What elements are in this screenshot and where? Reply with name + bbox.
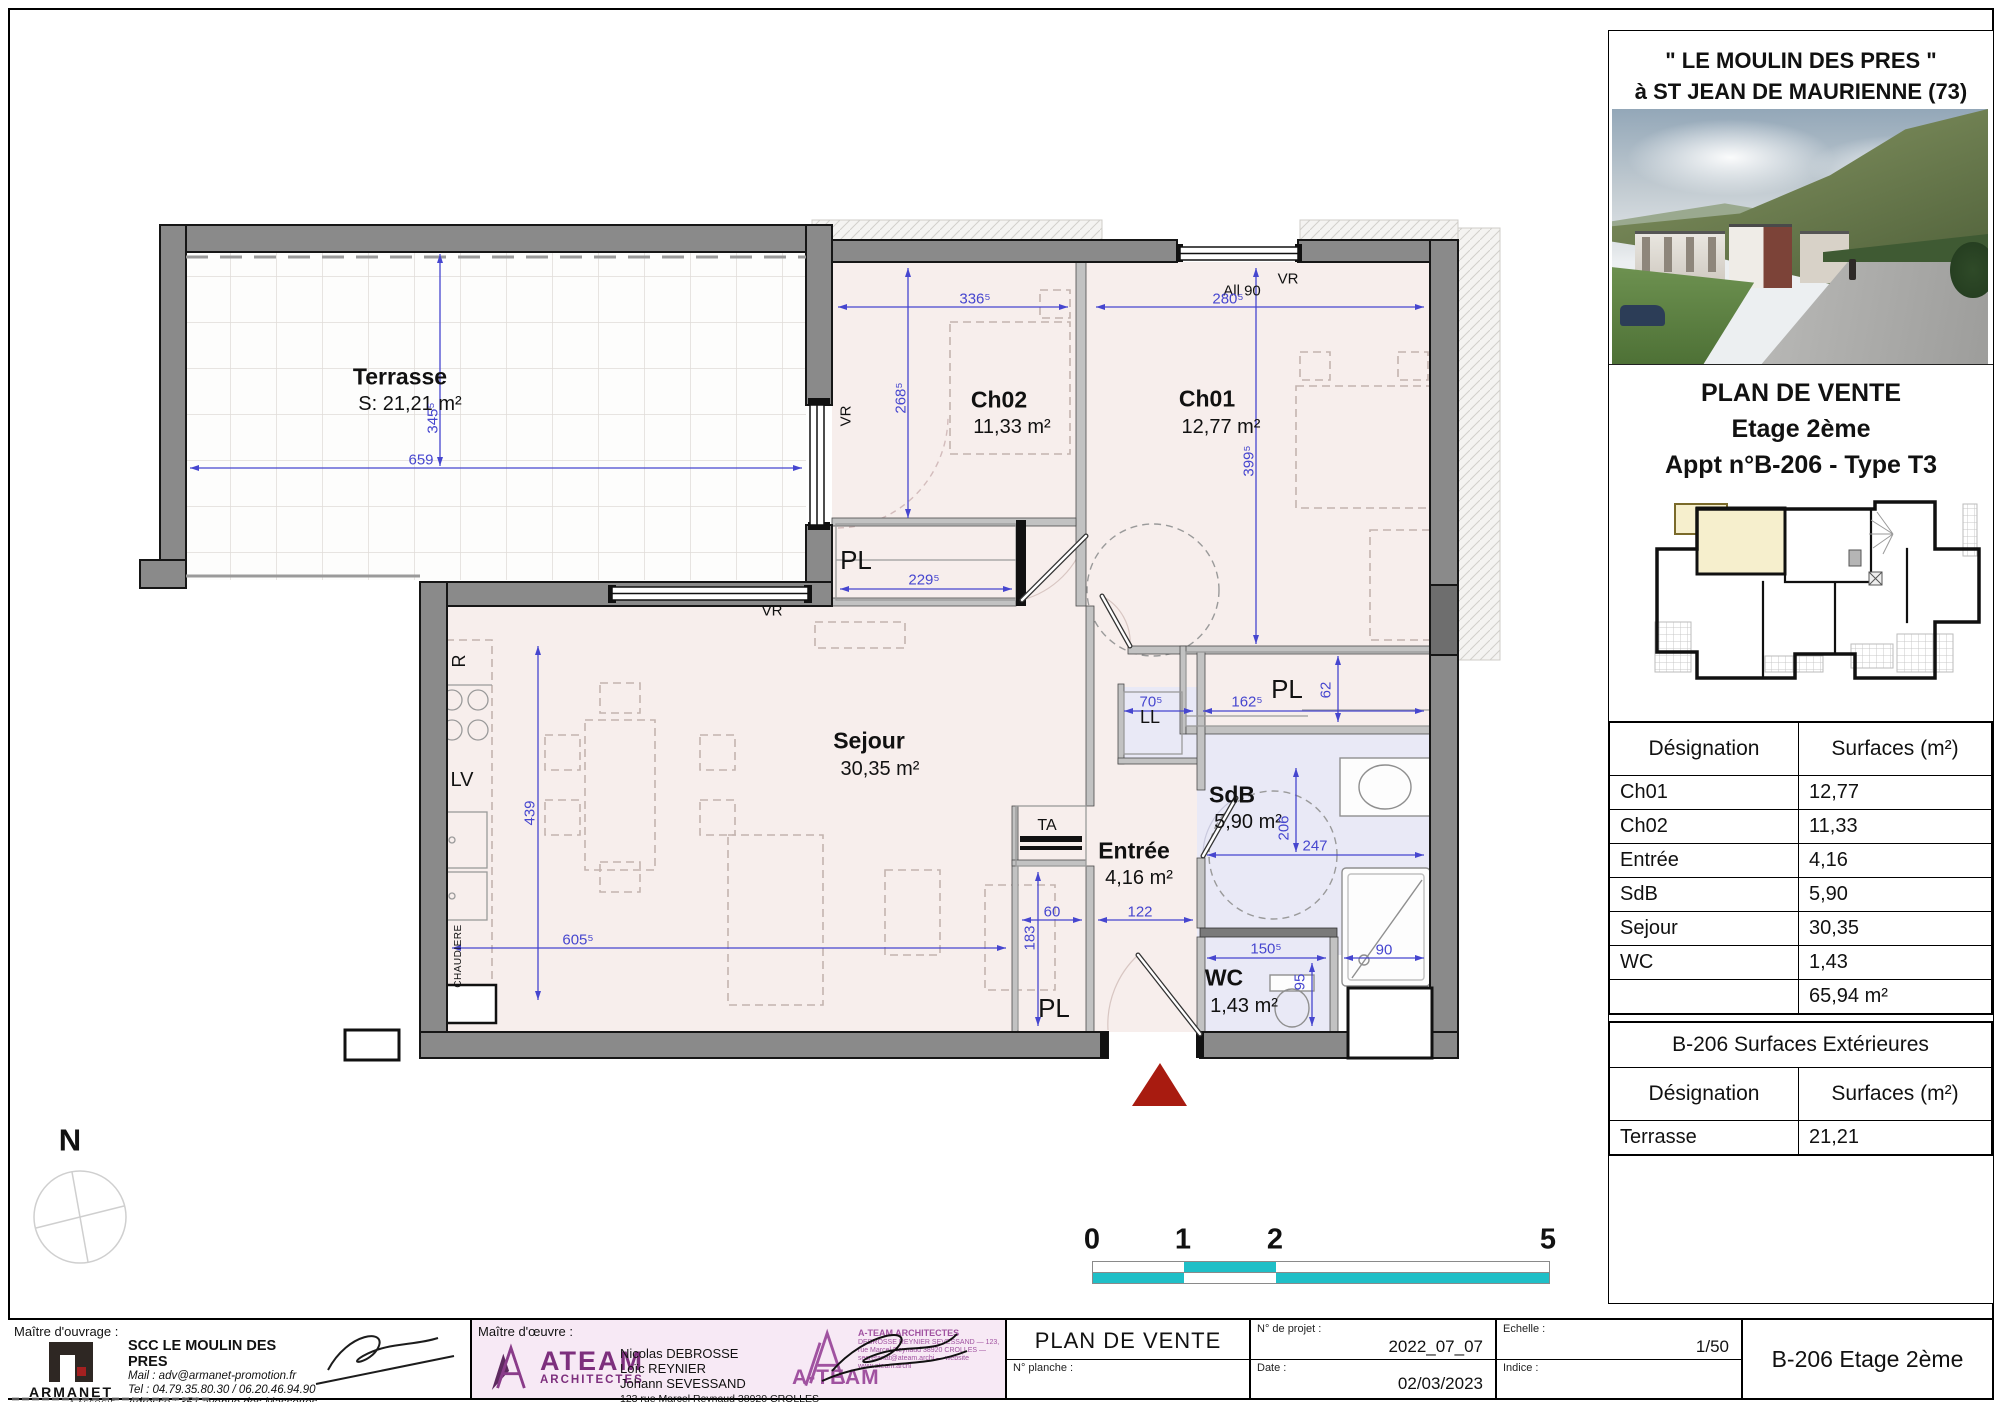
north-compass <box>34 1171 126 1263</box>
room-area-terrasse: S: 21,21 m² <box>358 394 461 414</box>
plan-de-vente-sheet: Terrasse S: 21,21 m² Ch02 11,33 m² Ch01 … <box>0 0 2000 1402</box>
armanet-logo-icon <box>49 1342 93 1382</box>
planche-label: N° planche : <box>1013 1362 1073 1374</box>
table-row: WC1,43 <box>1609 946 1992 980</box>
project-name: " LE MOULIN DES PRES " <box>1609 45 1993 76</box>
client-tel: Tel : 04.79.35.80.30 / 06.20.46.94.90 <box>128 1384 318 1398</box>
scale-tick-0: 0 <box>1084 1226 1100 1255</box>
photo-car <box>1620 305 1665 325</box>
architect-stamp: A-TEAM ARCHITECTES DEBROSSE REYNIER SEVE… <box>792 1326 1004 1392</box>
scale-bar-bottom <box>1092 1272 1550 1284</box>
client-company: SCC LE MOULIN DES PRES <box>128 1338 318 1370</box>
dim-399: 399⁵ <box>1242 445 1257 476</box>
architect-address: 123 rue Marcel Reynaud 38920 CROLLES <box>620 1392 819 1402</box>
dim-183: 183 <box>1023 925 1038 950</box>
room-area-ch01: 12,77 m² <box>1182 417 1261 437</box>
table-row: Ch0211,33 <box>1609 810 1992 844</box>
dim-280: 280⁵ <box>1212 292 1243 307</box>
label-dishwasher: LV <box>451 770 474 790</box>
photo-cloud <box>1627 119 1834 196</box>
room-label-sejour: Sejour <box>833 730 905 753</box>
dim-659: 659 <box>408 453 433 468</box>
client-signature <box>308 1326 458 1392</box>
label-vr-ch01: VR <box>1278 272 1299 287</box>
cell-room: Ch02 <box>1609 810 1799 844</box>
label-vr-ch02: VR <box>839 406 854 427</box>
architect-signature <box>792 1326 1004 1392</box>
sheet-title-block: PLAN DE VENTE Etage 2ème Appt n°B-206 - … <box>1609 364 1993 483</box>
photo-building <box>1729 224 1793 288</box>
table-row: Sejour30,35 <box>1609 912 1992 946</box>
divider <box>1007 1359 1249 1360</box>
exterior-col-surface: Surfaces (m²) <box>1799 1068 1993 1121</box>
cell-surface: 11,33 <box>1799 810 1993 844</box>
architect-name: Loïc REYNIER <box>620 1361 819 1376</box>
key-plan <box>1645 494 1985 694</box>
dim-150: 150⁵ <box>1250 942 1281 957</box>
client-label: Maître d'ouvrage : <box>14 1324 118 1339</box>
exterior-surfaces-table: B-206 Surfaces Extérieures Désignation S… <box>1608 1021 1993 1156</box>
architect-label: Maître d'œuvre : <box>478 1324 573 1339</box>
dim-206: 206 <box>1277 815 1292 840</box>
surfaces-col-designation: Désignation <box>1609 722 1799 776</box>
cell-surface: 21,21 <box>1799 1121 1993 1156</box>
date-label: Date : <box>1257 1362 1286 1374</box>
project-header: " LE MOULIN DES PRES " à ST JEAN DE MAUR… <box>1609 31 1993 107</box>
dim-162: 162⁵ <box>1231 695 1262 710</box>
project-city: à ST JEAN DE MAURIENNE (73) <box>1609 76 1993 107</box>
indice-label: Indice : <box>1503 1362 1538 1374</box>
client-mail: Mail : adv@armanet-promotion.fr <box>128 1370 318 1384</box>
room-label-wc: WC <box>1205 967 1243 990</box>
photo-building-windows <box>1642 237 1717 273</box>
label-fridge: R <box>450 655 468 668</box>
room-area-entree: 4,16 m² <box>1105 868 1173 888</box>
architect-name: Nicolas DEBROSSE <box>620 1346 819 1361</box>
divider <box>1497 1359 1741 1360</box>
dim-60: 60 <box>1044 905 1061 920</box>
exterior-table-title: B-206 Surfaces Extérieures <box>1609 1022 1992 1068</box>
dim-268: 268⁵ <box>894 382 909 413</box>
dim-90: 90 <box>1376 943 1393 958</box>
dim-229: 229⁵ <box>908 573 939 588</box>
armanet-logo: ARMANET & ASSOCIÉ PROMOTEUR CONSTRUCTEUR <box>26 1342 116 1402</box>
label-ll-washer: LL <box>1140 708 1160 726</box>
dim-122: 122 <box>1127 905 1152 920</box>
north-label: N <box>59 1125 81 1156</box>
sheet-floor: Etage 2ème <box>1609 411 1993 447</box>
dim-605: 605⁵ <box>562 933 593 948</box>
client-block: Maître d'ouvrage : ARMANET & ASSOCIÉ PRO… <box>8 1320 470 1398</box>
doc-title-cell: PLAN DE VENTE N° planche : <box>1005 1320 1249 1398</box>
room-label-entree: Entrée <box>1098 840 1170 863</box>
label-boiler: CHAUDIERE <box>454 924 464 987</box>
surfaces-table: Désignation Surfaces (m²) Ch0112,77 Ch02… <box>1608 721 1993 1015</box>
dim-95: 95 <box>1293 974 1308 991</box>
photo-tree <box>1950 242 1988 298</box>
project-number-value: 2022_07_07 <box>1388 1337 1483 1357</box>
cell-surface: 5,90 <box>1799 878 1993 912</box>
closet-label-pl-right: PL <box>1271 676 1303 702</box>
doc-title: PLAN DE VENTE <box>1007 1328 1249 1354</box>
reference-value: B-206 Etage 2ème <box>1743 1320 1992 1398</box>
surfaces-col-surface: Surfaces (m²) <box>1799 722 1993 776</box>
cell-room: Terrasse <box>1609 1121 1799 1156</box>
sheet-apartment: Appt n°B-206 - Type T3 <box>1609 447 1993 483</box>
project-number-label: N° de projet : <box>1257 1323 1321 1335</box>
dim-439: 439 <box>523 800 538 825</box>
cell-empty <box>1609 980 1799 1015</box>
cell-surface: 12,77 <box>1799 776 1993 810</box>
architect-name: Johann SEVESSAND <box>620 1376 819 1391</box>
scale-tick-5: 5 <box>1540 1226 1556 1255</box>
photo-person <box>1849 259 1856 279</box>
dim-336: 336⁵ <box>959 292 990 307</box>
reference-cell: B-206 Etage 2ème <box>1741 1320 1992 1398</box>
table-row: Ch0112,77 <box>1609 776 1992 810</box>
scale-value: 1/50 <box>1696 1337 1729 1357</box>
closet-label-pl-hall: PL <box>840 547 872 573</box>
dim-247: 247 <box>1302 839 1327 854</box>
cell-surface: 4,16 <box>1799 844 1993 878</box>
scale-label: Echelle : <box>1503 1323 1545 1335</box>
cell-room: Entrée <box>1609 844 1799 878</box>
room-area-wc: 1,43 m² <box>1210 996 1278 1016</box>
dim-62: 62 <box>1319 682 1334 699</box>
room-area-sdb: 5,90 m² <box>1214 812 1282 832</box>
project-number-cell: N° de projet : 2022_07_07 Date : 02/03/2… <box>1249 1320 1495 1398</box>
table-row-total: 65,94 m² <box>1609 980 1992 1015</box>
dim-345: 345⁵ <box>426 402 441 433</box>
sliding-door-sdb-wc <box>1200 928 1337 937</box>
table-row: SdB5,90 <box>1609 878 1992 912</box>
cell-surface: 30,35 <box>1799 912 1993 946</box>
cell-room: SdB <box>1609 878 1799 912</box>
project-photo <box>1612 109 1988 364</box>
architect-names: Nicolas DEBROSSE Loïc REYNIER Johann SEV… <box>620 1346 819 1402</box>
cell-room: Sejour <box>1609 912 1799 946</box>
scale-cell: Echelle : 1/50 Indice : <box>1495 1320 1741 1398</box>
entry-arrow <box>1132 1063 1187 1106</box>
fineprint <box>12 1397 212 1401</box>
cell-room: Ch01 <box>1609 776 1799 810</box>
date-value: 02/03/2023 <box>1398 1374 1483 1394</box>
title-bar: Maître d'ouvrage : ARMANET & ASSOCIÉ PRO… <box>8 1318 1992 1398</box>
info-panel: " LE MOULIN DES PRES " à ST JEAN DE MAUR… <box>1608 30 1994 1304</box>
room-label-ch02: Ch02 <box>971 389 1027 412</box>
ateam-logo-icon <box>488 1342 532 1392</box>
exterior-col-designation: Désignation <box>1609 1068 1799 1121</box>
room-label-sdb: SdB <box>1209 784 1255 807</box>
sheet-title: PLAN DE VENTE <box>1609 375 1993 411</box>
divider <box>1251 1359 1495 1360</box>
label-ta: TA <box>1037 818 1056 834</box>
scale-tick-1: 1 <box>1175 1226 1191 1255</box>
table-row: Terrasse21,21 <box>1609 1121 1992 1156</box>
client-details: SCC LE MOULIN DES PRES Mail : adv@armane… <box>128 1338 318 1402</box>
dim-70: 70⁵ <box>1140 695 1163 710</box>
architect-block: Maître d'œuvre : ATEAM ARCHITECTES Nicol… <box>470 1320 1005 1398</box>
label-vr-sejour: VR <box>762 604 783 619</box>
room-label-terrasse: Terrasse <box>353 366 447 389</box>
closet-label-pl-bottom: PL <box>1038 995 1070 1021</box>
cell-room: WC <box>1609 946 1799 980</box>
room-area-sejour: 30,35 m² <box>841 759 920 779</box>
cell-total-surface: 65,94 m² <box>1799 980 1993 1015</box>
room-label-ch01: Ch01 <box>1179 388 1235 411</box>
cell-surface: 1,43 <box>1799 946 1993 980</box>
room-area-ch02: 11,33 m² <box>973 417 1050 437</box>
table-row: Entrée4,16 <box>1609 844 1992 878</box>
scale-tick-2: 2 <box>1267 1226 1283 1255</box>
